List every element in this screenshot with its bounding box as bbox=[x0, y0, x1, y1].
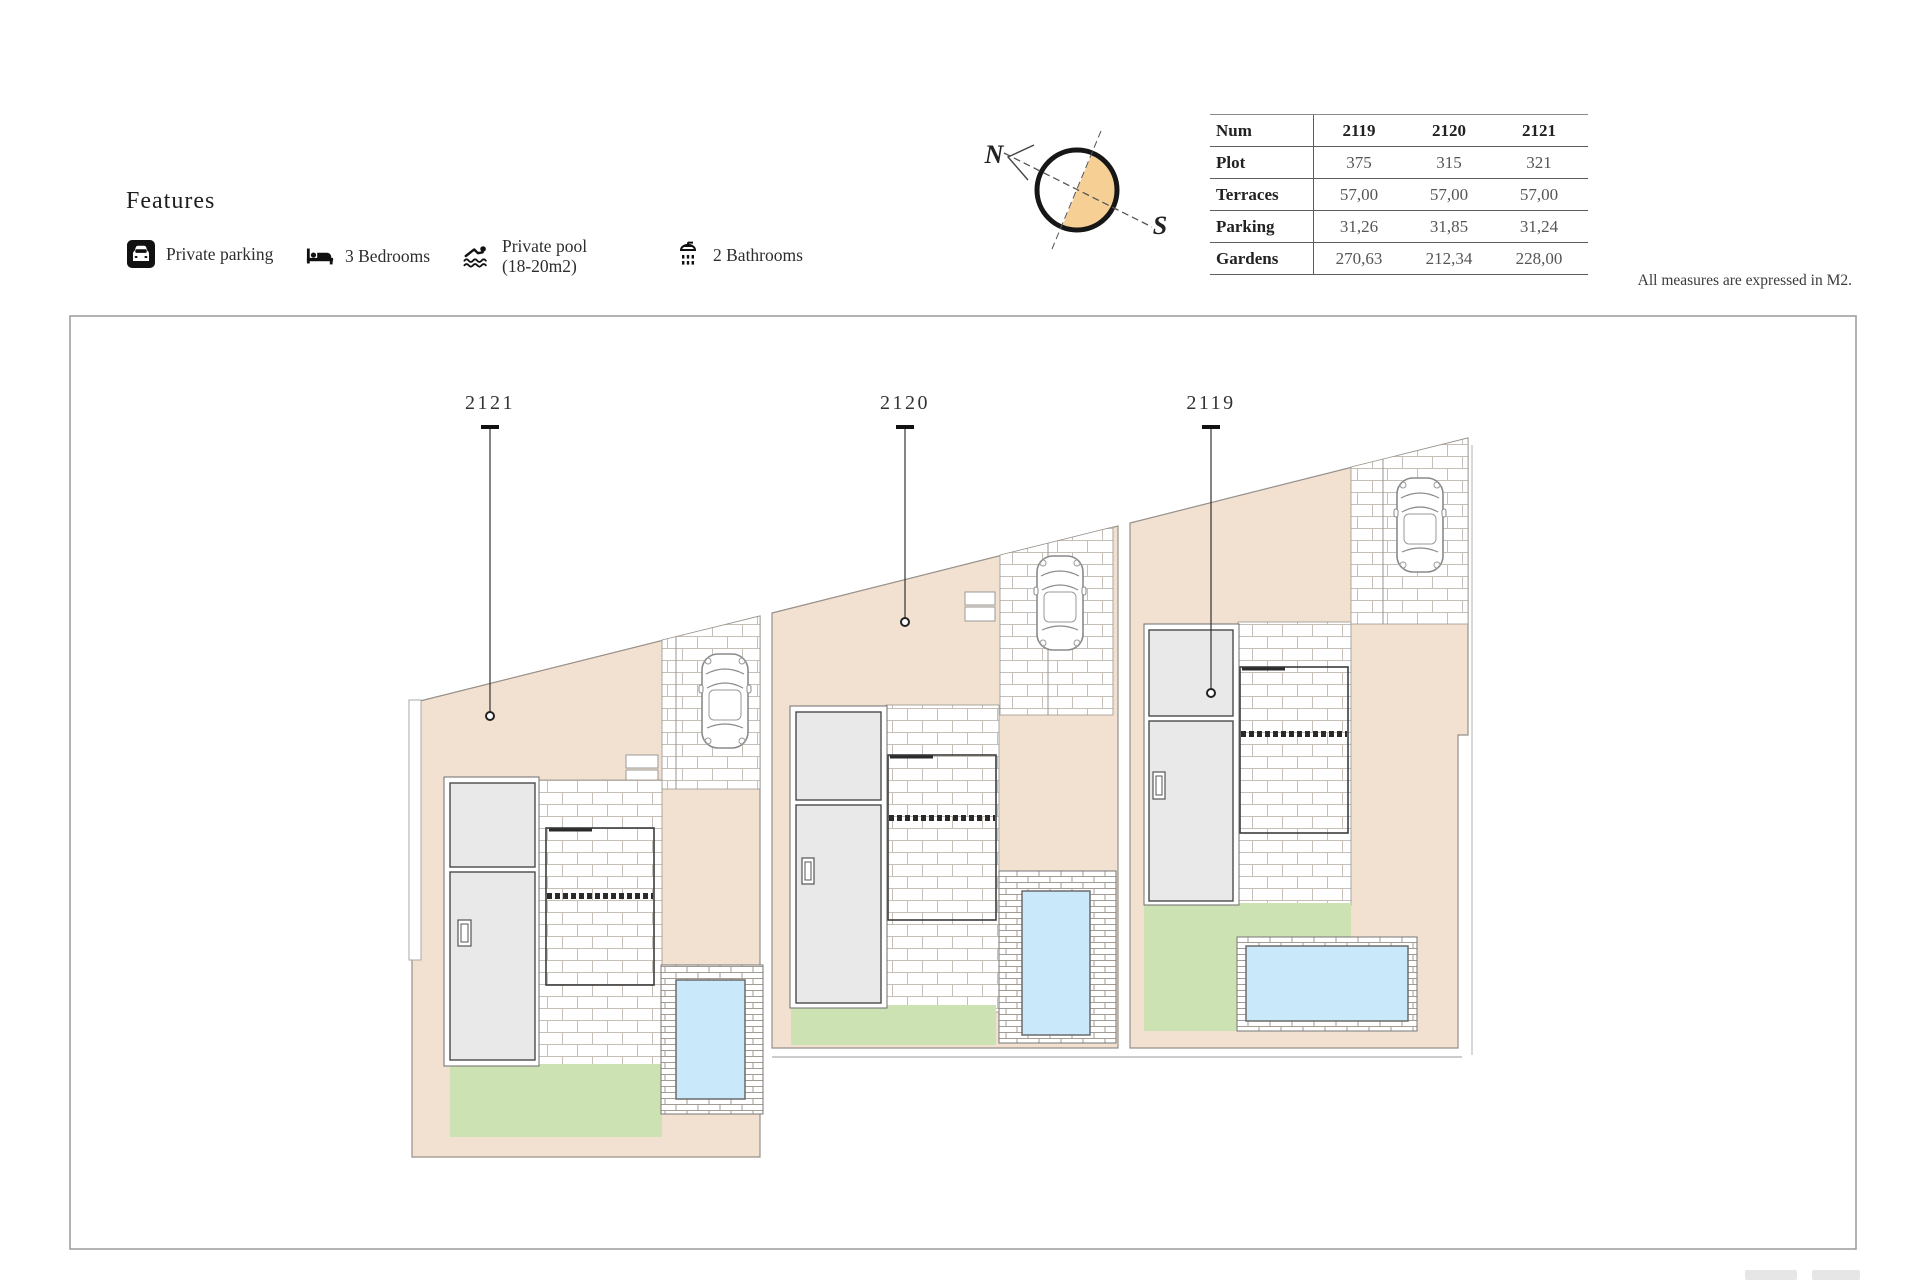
plot-2119 bbox=[1130, 438, 1468, 1048]
boundary-strip bbox=[409, 700, 421, 960]
brochure-page: Features Private parking 3 Bedrooms bbox=[0, 0, 1920, 1280]
house-roof-upper bbox=[796, 712, 881, 800]
plot-2120 bbox=[772, 526, 1118, 1048]
plot-label-2120: 2120 bbox=[880, 392, 930, 414]
leader-tick bbox=[896, 425, 914, 429]
leader-marker bbox=[901, 618, 909, 626]
pergola-terrace bbox=[888, 755, 996, 920]
pool bbox=[676, 980, 745, 1099]
pergola-terrace bbox=[1240, 667, 1348, 833]
north-label: N bbox=[984, 140, 1005, 169]
north-arrow bbox=[1008, 145, 1034, 180]
footer-watermark bbox=[1745, 1270, 1860, 1280]
house-roof-lower bbox=[796, 805, 881, 1003]
plot-2121 bbox=[409, 616, 763, 1157]
house-roof-lower bbox=[1149, 721, 1233, 901]
steps bbox=[626, 755, 658, 768]
compass: N S bbox=[984, 131, 1168, 249]
car-icon bbox=[1394, 478, 1446, 572]
leader-tick bbox=[481, 425, 499, 429]
car-icon bbox=[699, 654, 751, 748]
house-roof-upper bbox=[450, 783, 535, 867]
plot-label-2119: 2119 bbox=[1186, 392, 1235, 414]
pergola-terrace bbox=[546, 828, 654, 985]
car-icon bbox=[1034, 556, 1086, 650]
pool bbox=[1022, 891, 1090, 1035]
pool bbox=[1246, 946, 1408, 1021]
steps bbox=[965, 592, 995, 605]
garden bbox=[791, 1005, 996, 1045]
steps bbox=[965, 607, 995, 621]
leader-marker bbox=[1207, 689, 1215, 697]
leader-tick bbox=[1202, 425, 1220, 429]
house-roof-lower bbox=[450, 872, 535, 1060]
garden bbox=[450, 1064, 662, 1137]
house-roof-upper bbox=[1149, 630, 1233, 716]
plot-label-2121: 2121 bbox=[465, 392, 515, 414]
south-label: S bbox=[1153, 211, 1167, 240]
site-plan: 2121 2120 2119 N S bbox=[0, 0, 1920, 1280]
leader-marker bbox=[486, 712, 494, 720]
